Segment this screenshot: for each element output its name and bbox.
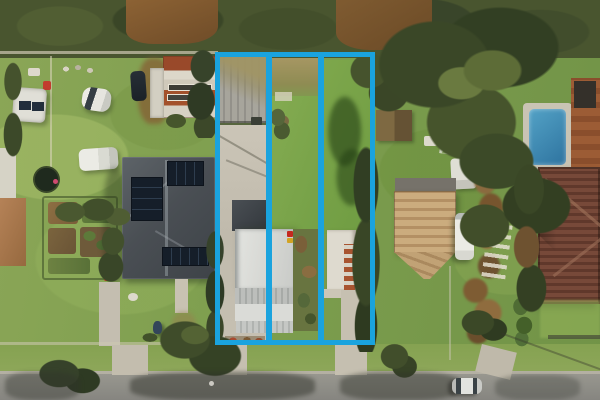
canopy-garden-east [92,222,134,286]
aerial-photo-stage: Aerial drone photograph of a suburban re… [0,0,600,400]
shed-side-wall [150,68,164,118]
yard-clutter-white [28,68,40,76]
white-object-lawn [128,293,138,301]
garden-bed-5 [48,258,90,274]
road-shadow-3 [5,372,80,400]
canopy-mid-right [505,148,553,313]
top-dirt-patch-left [126,0,218,44]
left-driveway-crossing [112,345,148,375]
solar-array-2 [131,177,163,221]
lot-boundary-outline [215,52,375,345]
dark-car [130,71,147,102]
road-shadow-1 [130,372,315,400]
lot-divider-1 [266,52,272,345]
tan-house-roof [394,191,456,253]
canopy-left-edge [0,52,26,170]
parked-car-road [452,378,482,394]
far-left-house-roof [0,198,26,266]
solar-array-1 [167,161,204,186]
canopy-verge-right [450,302,512,348]
yard-clutter-misc [58,62,98,76]
trampoline-marker [53,179,58,184]
white-car [81,86,113,113]
road-white-marker [209,381,214,386]
caravan-solar-panel-2 [32,102,44,111]
canopy-right-highlight [430,28,555,113]
left-driveway [99,282,120,346]
road-shadow-2 [340,372,460,400]
front-fence-right [548,335,600,339]
road-shadow-4 [495,375,580,400]
lot-divider-2 [318,52,324,345]
